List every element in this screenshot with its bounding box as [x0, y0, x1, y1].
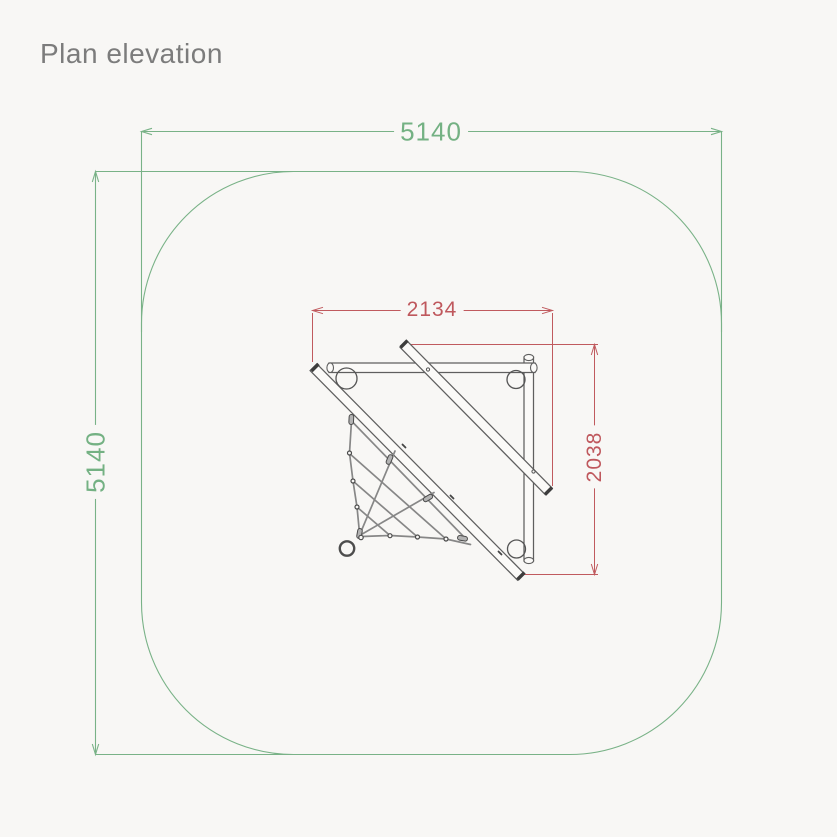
net-rope — [352, 422, 465, 538]
dimension-label-inner-width: 2134 — [401, 299, 464, 321]
beam-long-diagonal — [310, 364, 524, 580]
safety-zone-outline — [142, 172, 722, 755]
rope-bead-icon — [348, 451, 352, 455]
outer-height-dimension — [92, 172, 302, 755]
equipment-plan — [310, 341, 552, 581]
net-ring-icon — [340, 541, 354, 555]
post-clamp-icon — [507, 371, 525, 389]
climbing-net — [340, 414, 471, 555]
dimension-label-inner-depth: 2038 — [583, 426, 605, 489]
dimension-label-outer-width: 5140 — [394, 118, 468, 145]
dimension-label-outer-height: 5140 — [82, 425, 109, 499]
rope-bead-icon — [359, 535, 363, 539]
plan-elevation-canvas: Plan elevation 5140 5140 2134 2038 — [0, 0, 837, 837]
rope-bead-icon — [351, 479, 355, 483]
turnbuckle-icon — [457, 535, 468, 541]
post-clamp-icon — [508, 540, 526, 558]
page-title: Plan elevation — [40, 38, 223, 70]
rope-bead-icon — [416, 535, 420, 539]
beam-right-vertical — [524, 354, 534, 563]
net-edge-rope — [350, 421, 360, 533]
rope-bead-icon — [444, 537, 448, 541]
safety-zone — [142, 172, 722, 755]
turnbuckle-icon — [349, 414, 354, 424]
rope-bead-icon — [388, 534, 392, 538]
rope-bead-icon — [355, 505, 359, 509]
